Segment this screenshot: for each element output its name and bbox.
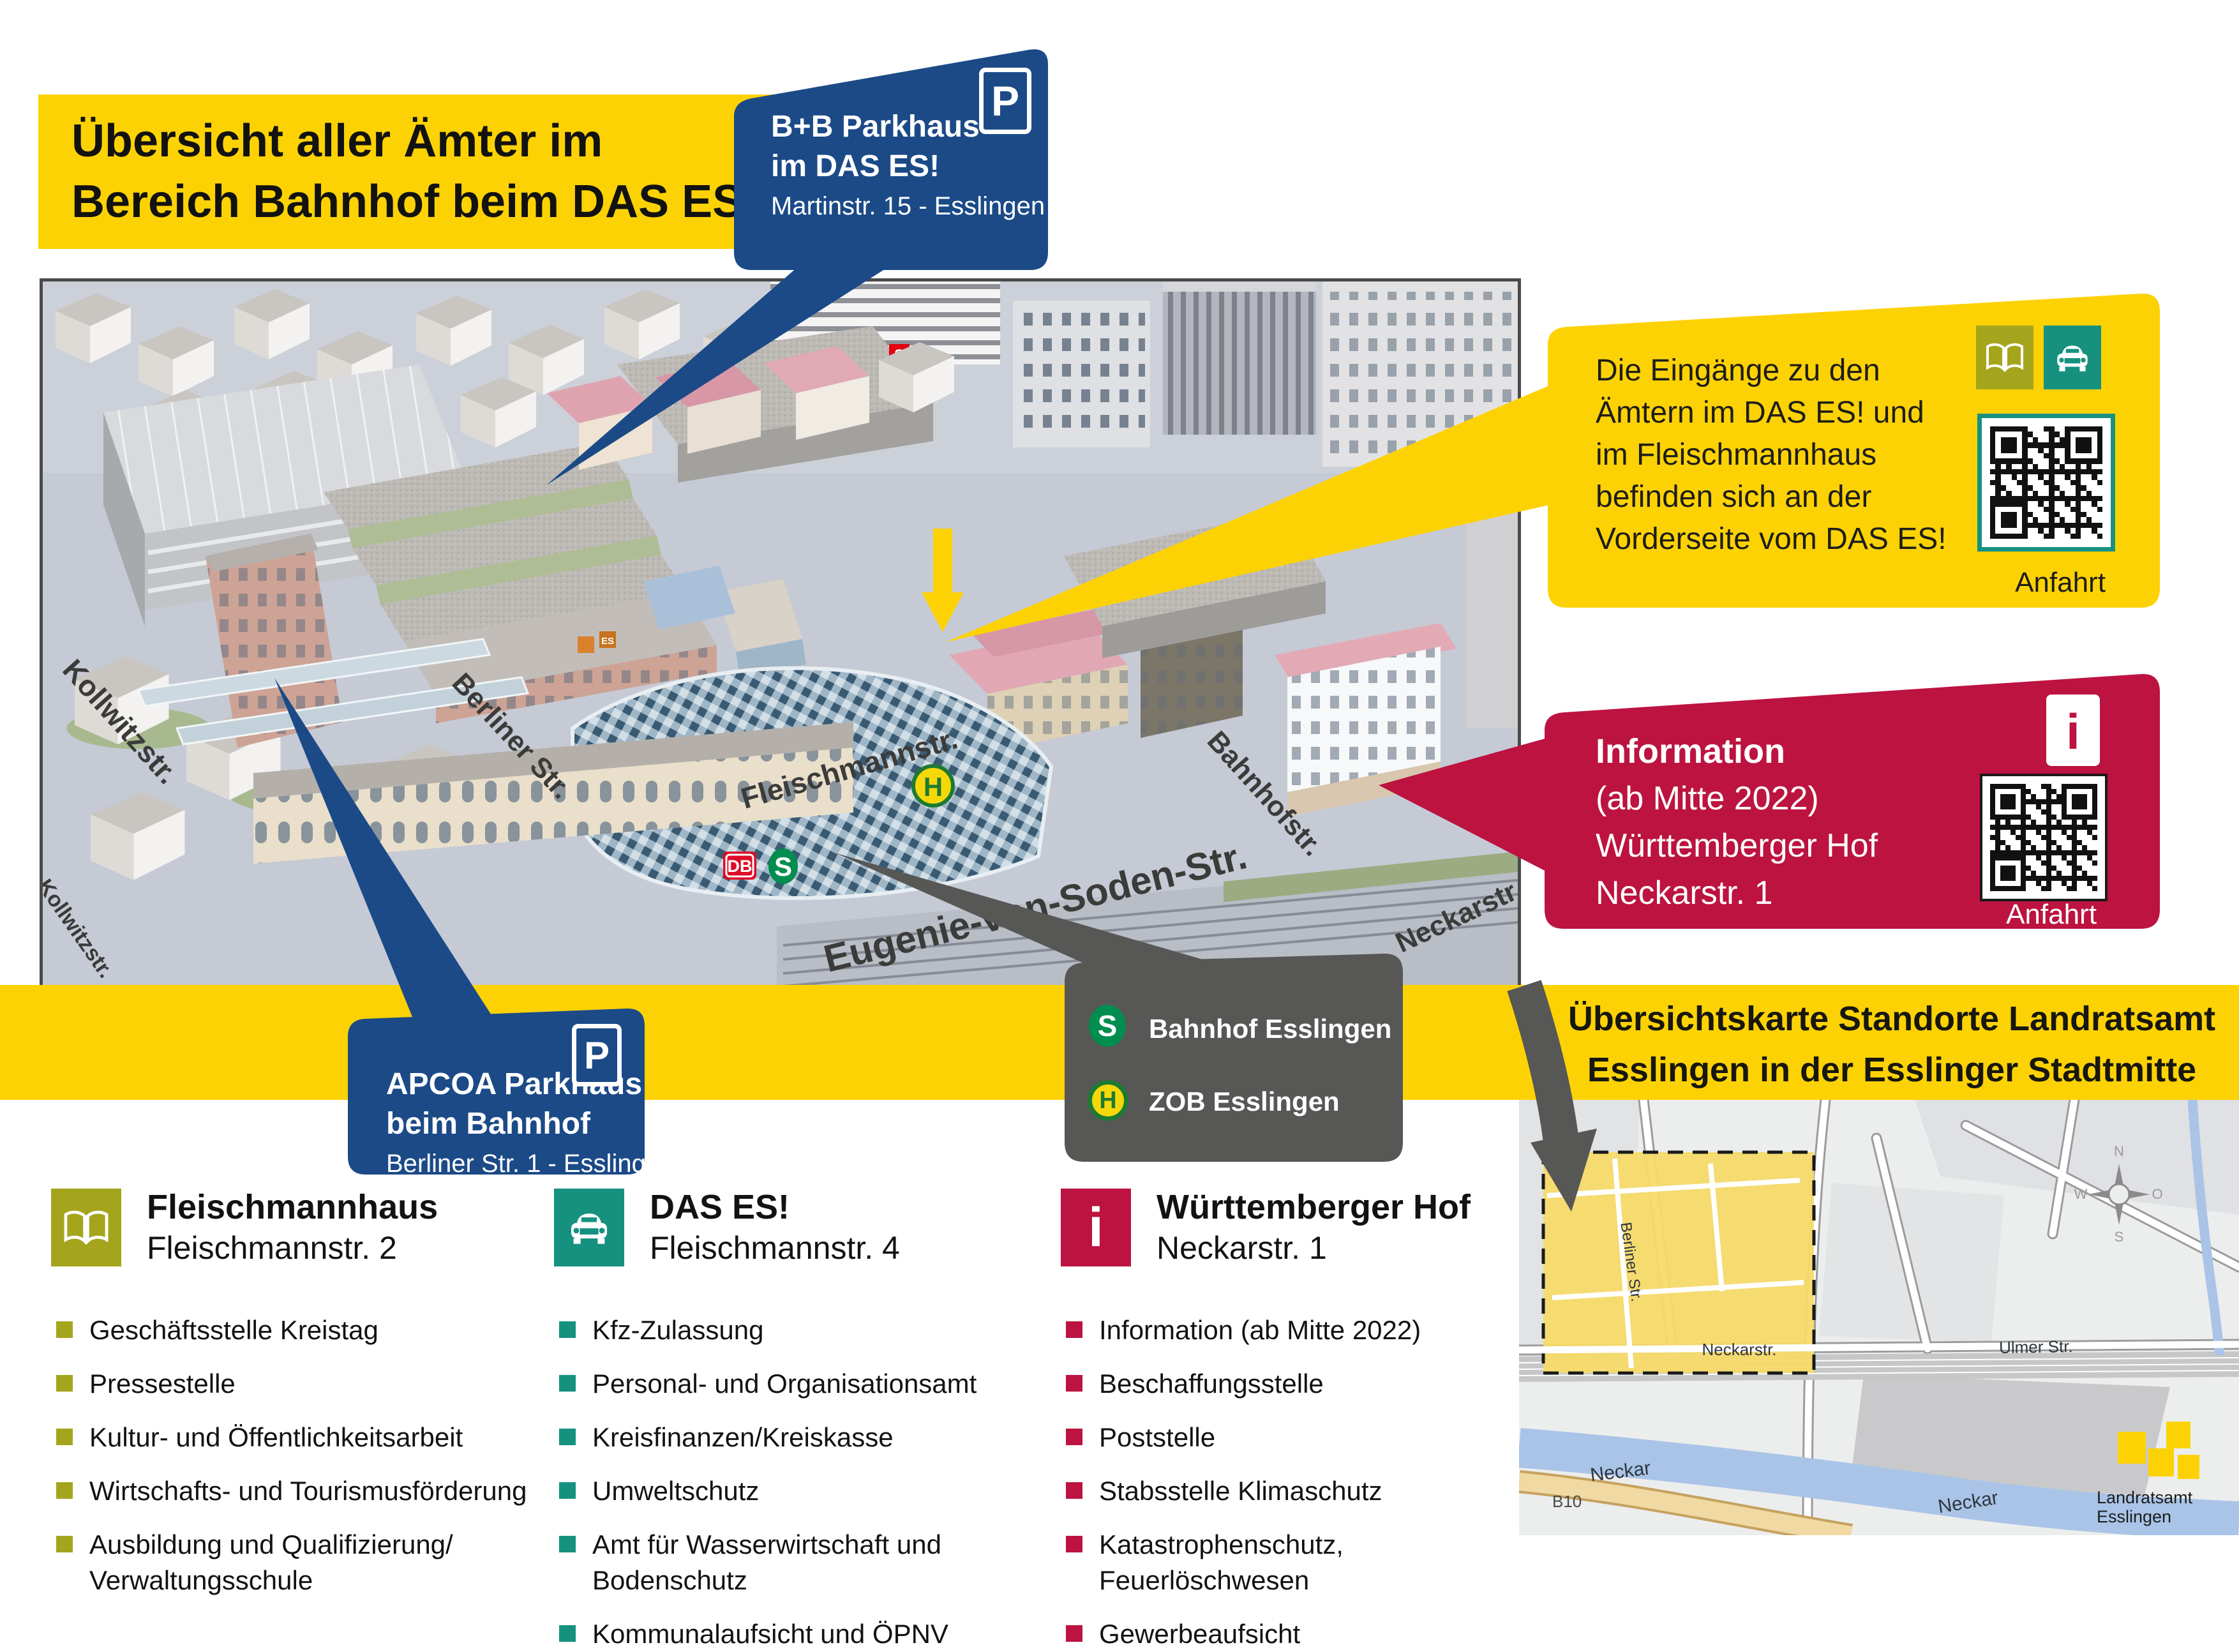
bullet-icon	[559, 1321, 576, 1338]
legend-item: Poststelle	[1066, 1420, 1546, 1455]
entrances-line-2: Ämtern im DAS ES! und	[1596, 392, 1947, 434]
legend-item-label: Kommunalaufsicht und ÖPNV	[592, 1616, 948, 1652]
information-callout-pointer	[1379, 737, 1550, 873]
info-line-2: (ab Mitte 2022)	[1596, 775, 1878, 822]
legend-item-label: Umweltschutz	[592, 1473, 759, 1509]
legend-address: Fleischmannstr. 4	[650, 1228, 900, 1268]
legend-name: Fleischmannhaus	[147, 1186, 438, 1228]
apcoa-address: Berliner Str. 1 - Esslingen	[386, 1146, 674, 1181]
bullet-icon	[559, 1375, 576, 1392]
parking-sign-icon: P	[979, 68, 1031, 134]
legend-item: Kommunalaufsicht und ÖPNV	[559, 1616, 1058, 1652]
legend-item: Amt für Wasserwirtschaft und Bodenschutz	[559, 1527, 1058, 1598]
sbahn-letter: S	[1098, 1009, 1118, 1043]
zob-label: ZOB Esslingen	[1149, 1086, 1340, 1117]
book-icon	[51, 1189, 121, 1266]
bullet-icon	[1066, 1375, 1082, 1392]
legend-items: Geschäftsstelle Kreistag Pressestelle Ku…	[56, 1312, 549, 1598]
parking-sign-letter: P	[991, 77, 1019, 125]
bullet-icon	[1066, 1625, 1082, 1642]
legend-name: Württemberger Hof	[1157, 1186, 1471, 1228]
legend-item-label: Poststelle	[1099, 1420, 1215, 1455]
legend-column-wuerttemberger-hof: i Württemberger Hof Neckarstr. 1 Informa…	[1061, 1186, 1546, 1582]
legend-item: Wirtschafts- und Tourismusförderung	[56, 1473, 549, 1509]
sbahn-station-label: Bahnhof Esslingen	[1149, 1014, 1391, 1044]
legend-item-label: Kultur- und Öffentlichkeitsarbeit	[89, 1420, 463, 1455]
legend-item: Stabsstelle Klimaschutz	[1066, 1473, 1546, 1509]
bullet-icon	[559, 1482, 576, 1499]
bullet-icon	[56, 1375, 73, 1392]
entrance-arrow-icon	[922, 529, 964, 632]
legend-item: Ausbildung und Qualifizierung/ Verwaltun…	[56, 1527, 549, 1598]
bullet-icon	[56, 1536, 73, 1552]
legend-item: Geschäftsstelle Kreistag	[56, 1312, 549, 1348]
info-line-3: Württemberger Hof	[1596, 822, 1878, 869]
entrances-callout-pointer	[945, 384, 1552, 642]
legend-item-label: Beschaffungsstelle	[1099, 1366, 1324, 1402]
qr-label: Anfahrt	[2004, 567, 2116, 599]
bullet-icon	[1066, 1321, 1082, 1338]
information-sign-letter: i	[2066, 703, 2080, 761]
parking-sign-icon: P	[572, 1024, 622, 1086]
information-callout-content: Information (ab Mitte 2022) Württemberge…	[1596, 728, 1878, 917]
entrances-line-3: im Fleischmannhaus	[1596, 434, 1947, 476]
apcoa-callout-content: APCOA Parkhaus beim Bahnhof Berliner Str…	[386, 1065, 674, 1181]
legend-address: Fleischmannstr. 2	[147, 1228, 438, 1268]
legend-column-fleischmannhaus: Fleischmannhaus Fleischmannstr. 2 Geschä…	[51, 1186, 549, 1582]
bullet-icon	[559, 1625, 576, 1642]
transit-callout-pointer	[835, 853, 1222, 965]
legend-item-label: Geschäftsstelle Kreistag	[89, 1312, 378, 1348]
qr-label: Anfahrt	[1995, 899, 2108, 931]
qr-code-entrances	[1977, 414, 2115, 552]
info-icon: i	[1061, 1189, 1131, 1266]
bullet-icon	[559, 1429, 576, 1445]
apcoa-callout-pointer	[274, 678, 495, 1020]
info-line-4: Neckarstr. 1	[1596, 869, 1878, 917]
legend-item-label: Amt für Wasserwirtschaft und Bodenschutz	[592, 1527, 1058, 1598]
car-icon	[554, 1189, 624, 1266]
bullet-icon	[559, 1536, 576, 1552]
legend-item-label: Katastrophenschutz, Feuerlöschwesen	[1099, 1527, 1546, 1598]
entrances-line-4: befinden sich an der	[1596, 476, 1947, 518]
legend-item: Beschaffungsstelle	[1066, 1366, 1546, 1402]
legend-item-label: Wirtschafts- und Tourismusförderung	[89, 1473, 527, 1509]
bullet-icon	[56, 1321, 73, 1338]
legend-header: Fleischmannhaus Fleischmannstr. 2	[147, 1186, 438, 1268]
bullet-icon	[1066, 1536, 1082, 1552]
bullet-icon	[56, 1429, 73, 1445]
legend-item: Kultur- und Öffentlichkeitsarbeit	[56, 1420, 549, 1455]
legend-item: Pressestelle	[56, 1366, 549, 1402]
legend-item-label: Gewerbeaufsicht	[1099, 1616, 1300, 1652]
legend-item: Information (ab Mitte 2022)	[1066, 1312, 1546, 1348]
legend-item-label: Personal- und Organisationsamt	[592, 1366, 977, 1402]
entrances-line-5: Vorderseite vom DAS ES!	[1596, 518, 1947, 560]
legend-item: Katastrophenschutz, Feuerlöschwesen	[1066, 1527, 1546, 1598]
legend-column-das-es: DAS ES! Fleischmannstr. 4 Kfz-Zulassung …	[554, 1186, 1058, 1582]
legend-item-label: Stabsstelle Klimaschutz	[1099, 1473, 1382, 1509]
legend-item: Umweltschutz	[559, 1473, 1058, 1509]
legend-item-label: Information (ab Mitte 2022)	[1099, 1312, 1421, 1348]
legend-header: DAS ES! Fleischmannstr. 4	[650, 1186, 900, 1268]
car-icon	[2044, 326, 2101, 389]
legend-header: Württemberger Hof Neckarstr. 1	[1157, 1186, 1471, 1268]
book-icon	[1976, 326, 2033, 389]
legend-item-label: Kreisfinanzen/Kreiskasse	[592, 1420, 894, 1455]
bb-address: Martinstr. 15 - Esslingen	[771, 189, 1045, 223]
bus-stop-icon: H	[1088, 1080, 1128, 1121]
entrances-callout-content: Die Eingänge zu den Ämtern im DAS ES! un…	[1596, 350, 1947, 560]
overview-arrow-shaft	[1524, 986, 1561, 1141]
legend-address: Neckarstr. 1	[1157, 1228, 1471, 1268]
information-sign-icon: i	[2046, 695, 2100, 766]
info-letter: i	[1088, 1200, 1104, 1255]
apcoa-name-1: APCOA Parkhaus	[386, 1065, 674, 1104]
bb-callout-pointer	[546, 267, 888, 485]
bb-name-2: im DAS ES!	[771, 147, 1045, 186]
qr-code-information	[1980, 774, 2108, 901]
sbahn-icon: S	[1089, 1005, 1126, 1047]
legend-item: Personal- und Organisationsamt	[559, 1366, 1058, 1402]
info-line-1: Information	[1596, 728, 1878, 775]
legend-item: Gewerbeaufsicht	[1066, 1616, 1546, 1652]
apcoa-name-2: beim Bahnhof	[386, 1104, 674, 1144]
legend-items: Kfz-Zulassung Personal- und Organisation…	[559, 1312, 1058, 1652]
legend-item-label: Ausbildung und Qualifizierung/ Verwaltun…	[89, 1527, 485, 1598]
transit-callout-bubble	[1065, 954, 1403, 1162]
legend-name: DAS ES!	[650, 1186, 900, 1228]
legend-item-label: Kfz-Zulassung	[592, 1312, 763, 1348]
legend-item: Kfz-Zulassung	[559, 1312, 1058, 1348]
bus-stop-letter: H	[1099, 1087, 1116, 1115]
bullet-icon	[1066, 1429, 1082, 1445]
entrances-line-1: Die Eingänge zu den	[1596, 350, 1947, 392]
legend-items: Information (ab Mitte 2022) Beschaffungs…	[1066, 1312, 1546, 1652]
parking-sign-letter: P	[584, 1033, 610, 1078]
poster-page: { "title": { "line1": "Übersicht aller Ä…	[0, 0, 2239, 1583]
bullet-icon	[1066, 1482, 1082, 1499]
legend-item: Kreisfinanzen/Kreiskasse	[559, 1420, 1058, 1455]
bullet-icon	[56, 1482, 73, 1499]
legend-item-label: Pressestelle	[89, 1366, 236, 1402]
